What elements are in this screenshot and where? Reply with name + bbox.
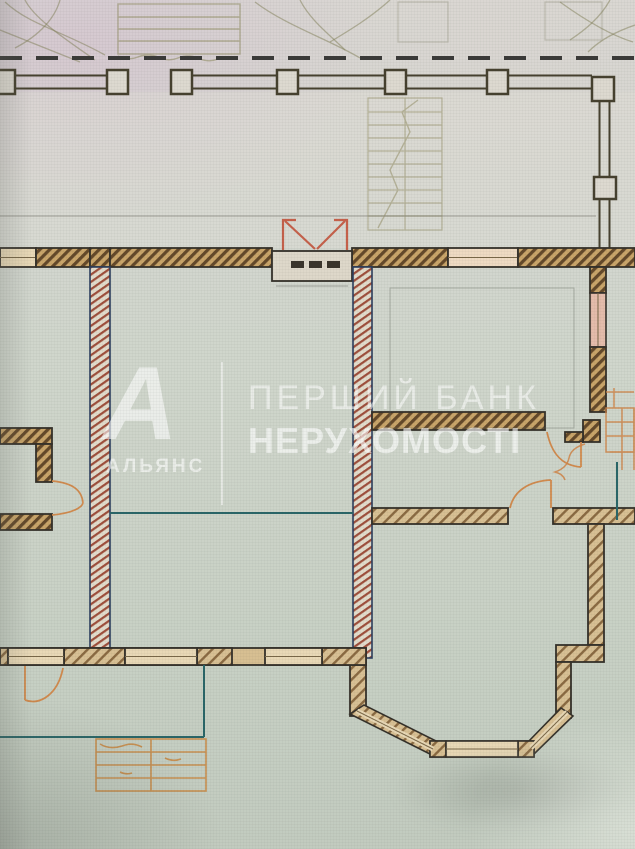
terrace-door-swing: [25, 666, 63, 702]
watermark-title-line1: ПЕРШИЙ БАНК: [248, 379, 540, 418]
closet-door-swings: [52, 481, 83, 515]
terrace-railing: [0, 70, 616, 248]
railing-corner-post: [592, 77, 614, 101]
railing-post: [594, 177, 616, 199]
photo-shadow: [392, 748, 635, 834]
staircase-sketch: [368, 98, 442, 230]
railing-post: [0, 70, 15, 94]
watermark-divider: [221, 362, 223, 505]
agency-logo-caption: АЛЬЯНС: [106, 456, 205, 478]
floor-plan-photo: А АЛЬЯНС ПЕРШИЙ БАНК НЕРУХОМОСТІ: [0, 0, 635, 849]
garden-faint-objects: [398, 2, 602, 42]
terrace-table-sketch: [96, 739, 206, 791]
railing-post: [487, 70, 508, 94]
exterior-wall-bottom: [0, 648, 366, 665]
closet-left-walls: [0, 428, 52, 530]
interior-wall-center: [353, 267, 372, 658]
railing-post: [385, 70, 406, 94]
entrance-door: [272, 220, 352, 286]
tree-branches-sketch: [0, 0, 635, 62]
entrance-door-leaves: [283, 220, 347, 250]
walls-right-lower: [350, 508, 635, 718]
garden-table-sketch: [118, 4, 240, 61]
watermark-title-line2: НЕРУХОМОСТІ: [248, 420, 521, 462]
railing-post: [171, 70, 192, 94]
railing-post: [277, 70, 298, 94]
railing-post: [107, 70, 128, 94]
